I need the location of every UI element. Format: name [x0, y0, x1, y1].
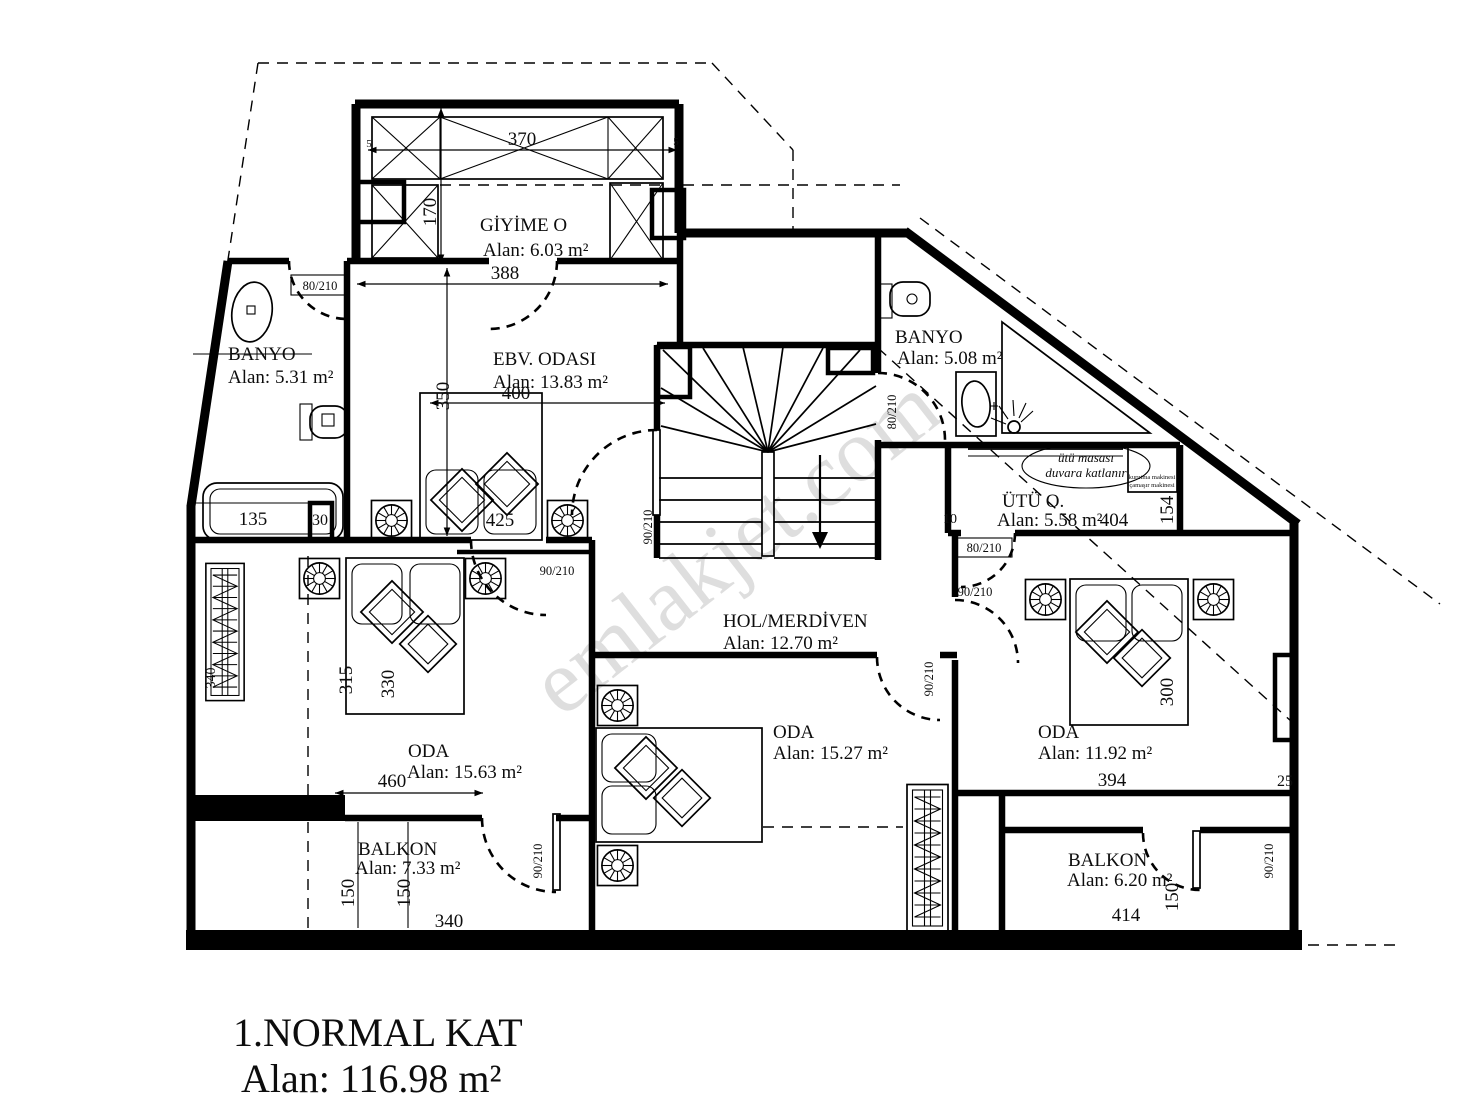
dim-150b: 150	[394, 879, 415, 908]
dim-394: 394	[1098, 770, 1127, 791]
room-label-oda-sol: ODA	[408, 741, 449, 762]
annotation-notes: ütü masası duvara katlanır kurutma makin…	[1045, 450, 1175, 489]
dim-170: 170	[420, 198, 441, 227]
sink-icon	[228, 280, 276, 345]
room-area-oda-sol: Alan: 15.63 m²	[407, 762, 522, 783]
room-label-balkon-sag: BALKON	[1068, 850, 1147, 871]
floor-plan-drawing: emlakjet.com	[0, 0, 1478, 1120]
door-label-90-balkon-sol: 90/210	[531, 844, 545, 879]
dim-135: 135	[239, 509, 268, 530]
door-label-80-banyo-sol: 80/210	[303, 279, 338, 293]
dim-330: 330	[378, 670, 399, 699]
note-appliance-2: çamaşır makinesi	[1129, 482, 1174, 489]
dim-340: 340	[435, 911, 464, 932]
bed-ebv	[371, 393, 587, 541]
nightstand-icon	[465, 558, 505, 598]
shower-tray-icon	[1002, 322, 1150, 433]
nightstand-icon	[547, 500, 587, 540]
door-label-80-banyo-sag: 80/210	[885, 395, 899, 430]
room-label-ebv: EBV. ODASI	[493, 349, 596, 370]
dim-10: 10	[943, 512, 957, 527]
bottom-wall-band	[186, 930, 1302, 950]
bed-oda-orta	[596, 685, 762, 885]
room-label-hol: HOL/MERDİVEN	[723, 611, 868, 632]
plan-title: 1.NORMAL KAT	[233, 1010, 523, 1055]
dim-5a: 5	[366, 138, 372, 150]
room-area-utu: Alan: 5.58 m²	[997, 510, 1103, 531]
title-block: 1.NORMAL KAT Alan: 116.98 m²	[233, 1010, 523, 1101]
room-label-utu: ÜTÜ O.	[1002, 491, 1064, 512]
room-area-banyo-sag: Alan: 5.08 m²	[897, 348, 1003, 369]
toilet-icon	[890, 282, 930, 316]
room-label-banyo-sol: BANYO	[228, 344, 296, 365]
room-label-oda-orta: ODA	[773, 722, 814, 743]
room-area-oda-sag: Alan: 11.92 m²	[1038, 743, 1153, 764]
room-area-hol: Alan: 12.70 m²	[723, 633, 838, 654]
room-area-giyime: Alan: 6.03 m²	[483, 240, 589, 261]
nightstand-icon	[371, 500, 411, 540]
thick-wall-left	[191, 795, 345, 821]
dim-350: 350	[433, 382, 454, 411]
note-appliance-1: kurutma makinesi	[1129, 474, 1176, 481]
dim-300: 300	[1157, 678, 1178, 707]
door-label-90-oda-orta: 90/210	[922, 662, 936, 697]
radiator-icon	[907, 785, 948, 932]
dim-404: 404	[1100, 510, 1129, 531]
note-iron-2: duvara katlanır	[1045, 465, 1127, 480]
dim-388: 388	[491, 263, 520, 284]
note-iron-1: ütü masası	[1058, 450, 1114, 465]
door-label-80-utu: 80/210	[967, 541, 1002, 555]
dim-425: 425	[486, 510, 515, 531]
floor-plan-page: emlakjet.com	[0, 0, 1478, 1120]
dim-414: 414	[1112, 905, 1141, 926]
room-area-banyo-sol: Alan: 5.31 m²	[228, 367, 334, 388]
room-area-balkon-sol: Alan: 7.33 m²	[355, 858, 461, 879]
plan-total-area: Alan: 116.98 m²	[241, 1056, 502, 1101]
nightstand-icon	[299, 558, 339, 598]
dim-460: 460	[378, 771, 407, 792]
room-area-balkon-sag: Alan: 6.20 m²	[1067, 870, 1173, 891]
nightstand-icon	[597, 845, 637, 885]
dim-5b: 5	[673, 136, 679, 148]
dim-150c: 150	[1162, 883, 1183, 912]
door-label-90-oda-sol: 90/210	[540, 564, 575, 578]
room-label-oda-sag: ODA	[1038, 722, 1079, 743]
bed-oda-sol	[299, 558, 505, 714]
room-label-banyo-sag: BANYO	[895, 327, 963, 348]
room-area-oda-orta: Alan: 15.27 m²	[773, 743, 888, 764]
dim-30: 30	[312, 512, 328, 529]
door-label-90-balkon-sag: 90/210	[1262, 844, 1276, 879]
sink-icon	[960, 380, 993, 429]
dim-25: 25	[1277, 773, 1293, 790]
toilet-icon	[310, 406, 348, 438]
bed-oda-sag	[1025, 579, 1233, 725]
dim-315: 315	[336, 666, 357, 695]
room-label-balkon-sol: BALKON	[358, 839, 437, 860]
dim-340-radiator: 340	[204, 668, 219, 689]
dim-400: 400	[502, 383, 531, 404]
nightstand-icon	[1193, 579, 1233, 619]
dim-370: 370	[508, 129, 537, 150]
room-label-giyime: GİYİME O	[480, 215, 567, 236]
door-label-90-ebv: 90/210	[641, 510, 655, 545]
dim-150a: 150	[338, 879, 359, 908]
door-label-90-oda-sag: 90/210	[958, 585, 993, 599]
shower-head-icon	[1008, 421, 1020, 433]
dim-154: 154	[1157, 495, 1178, 524]
nightstand-icon	[1025, 579, 1065, 619]
